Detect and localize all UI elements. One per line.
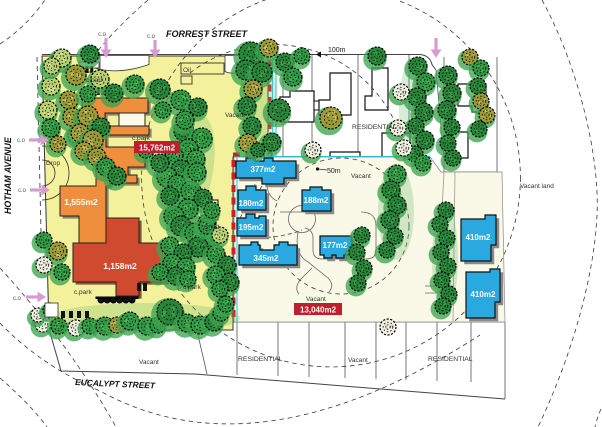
svg-text:195m2: 195m2 bbox=[239, 223, 264, 232]
svg-text:410m2: 410m2 bbox=[471, 290, 496, 299]
svg-text:Vacant: Vacant bbox=[351, 173, 371, 180]
svg-text:50m: 50m bbox=[327, 168, 341, 175]
svg-text:Vacant: Vacant bbox=[139, 359, 159, 366]
svg-text:c.park: c.park bbox=[183, 284, 201, 291]
svg-text:c.park: c.park bbox=[132, 135, 150, 142]
svg-text:Shed: Shed bbox=[204, 224, 220, 231]
svg-text:c.o: c.o bbox=[98, 32, 107, 38]
svg-text:410m2: 410m2 bbox=[466, 233, 491, 242]
svg-text:188m2: 188m2 bbox=[304, 196, 329, 205]
svg-text:c.o: c.o bbox=[13, 296, 22, 302]
svg-text:c.o: c.o bbox=[17, 138, 26, 144]
svg-text:Drop: Drop bbox=[46, 160, 60, 167]
svg-text:HOTHAM AVENUE: HOTHAM AVENUE bbox=[3, 136, 13, 214]
svg-text:177m2: 177m2 bbox=[323, 241, 348, 250]
svg-text:13,040m2: 13,040m2 bbox=[300, 306, 337, 315]
svg-text:Vacant: Vacant bbox=[225, 112, 245, 119]
svg-text:1,555m2: 1,555m2 bbox=[64, 197, 98, 207]
svg-text:180m2: 180m2 bbox=[239, 199, 264, 208]
svg-text:1,158m2: 1,158m2 bbox=[103, 261, 137, 271]
svg-text:Vacant: Vacant bbox=[348, 357, 368, 364]
svg-text:377m2: 377m2 bbox=[251, 165, 276, 174]
svg-text:Oil: Oil bbox=[183, 67, 192, 74]
svg-text:c.park: c.park bbox=[74, 289, 92, 296]
svg-text:FORREST STREET: FORREST STREET bbox=[166, 29, 249, 39]
svg-text:c.park: c.park bbox=[86, 77, 104, 84]
svg-text:345m2: 345m2 bbox=[254, 254, 279, 263]
svg-text:RESIDENTIAL: RESIDENTIAL bbox=[352, 124, 397, 131]
svg-text:Vacant: Vacant bbox=[306, 296, 326, 303]
svg-text:Vacant land: Vacant land bbox=[520, 183, 554, 190]
svg-text:15,762m2: 15,762m2 bbox=[139, 144, 176, 153]
svg-text:c.o: c.o bbox=[147, 34, 156, 40]
svg-text:RESIDENTIAL: RESIDENTIAL bbox=[428, 356, 473, 363]
svg-text:c.o: c.o bbox=[18, 188, 27, 194]
svg-text:RESIDENTIAL: RESIDENTIAL bbox=[238, 356, 283, 363]
svg-text:100m: 100m bbox=[328, 47, 346, 54]
